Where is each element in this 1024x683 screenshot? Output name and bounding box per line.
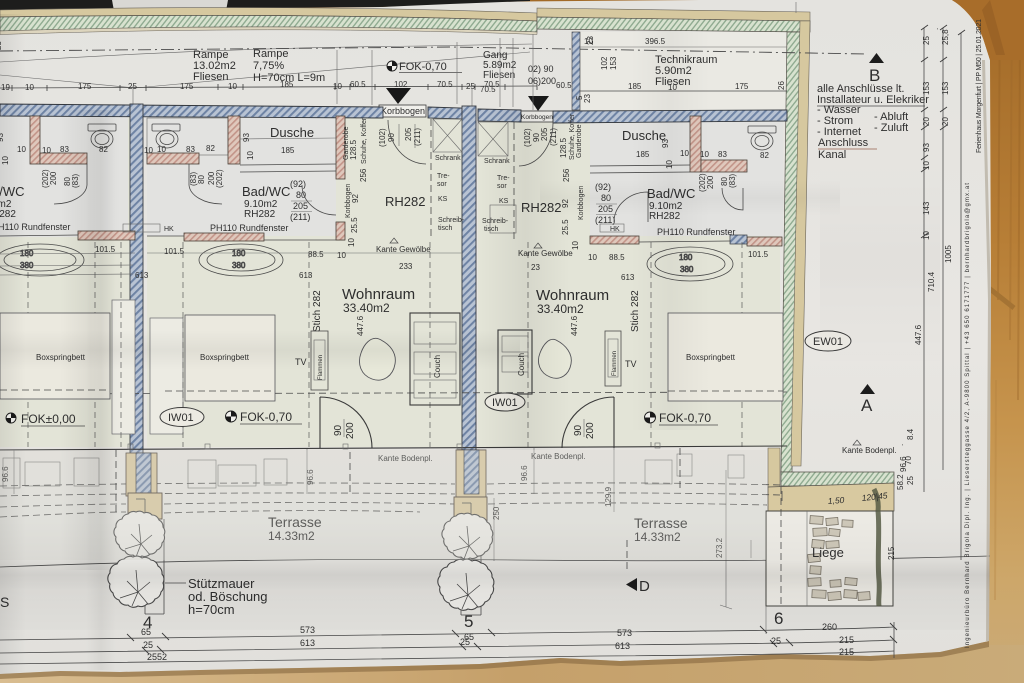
svg-text:20: 20	[941, 117, 950, 126]
svg-text:80: 80	[296, 190, 306, 200]
svg-text:(83): (83)	[728, 173, 737, 188]
svg-text:65: 65	[141, 627, 151, 637]
svg-text:200: 200	[49, 171, 58, 185]
svg-text:80: 80	[197, 175, 206, 184]
svg-text:FOK-0,70: FOK-0,70	[659, 411, 711, 425]
svg-text:10: 10	[17, 145, 26, 154]
svg-text:256: 256	[562, 168, 571, 182]
svg-text:82: 82	[760, 151, 769, 160]
svg-text:23: 23	[583, 94, 592, 103]
svg-text:260: 260	[822, 622, 837, 632]
svg-text:2552: 2552	[147, 652, 167, 662]
svg-text:25.5: 25.5	[350, 217, 359, 233]
svg-text:613: 613	[621, 273, 635, 282]
svg-text:10: 10	[1, 156, 10, 165]
svg-text:205: 205	[404, 127, 413, 141]
svg-text:10: 10	[337, 251, 346, 260]
svg-text:5: 5	[464, 612, 473, 631]
svg-text:Kante Gewölbe: Kante Gewölbe	[376, 245, 431, 254]
svg-text:10: 10	[922, 161, 931, 170]
svg-text:KS: KS	[499, 198, 509, 205]
svg-text:256: 256	[359, 168, 368, 182]
svg-text:20: 20	[922, 117, 931, 126]
svg-text:Schuhe, Koffer: Schuhe, Koffer	[569, 113, 576, 160]
svg-text:1005: 1005	[944, 245, 953, 263]
svg-text:90: 90	[333, 424, 344, 436]
svg-text:200: 200	[585, 422, 596, 439]
svg-text:FOK-0,70: FOK-0,70	[240, 410, 292, 424]
svg-text:H282: H282	[0, 209, 16, 220]
svg-text:82: 82	[99, 145, 108, 154]
svg-text:Fliesen: Fliesen	[193, 71, 228, 83]
svg-text:82: 82	[206, 144, 215, 153]
svg-text:25: 25	[771, 636, 781, 646]
svg-text:Schreib-: Schreib-	[482, 218, 509, 225]
svg-text:Boxspringbett: Boxspringbett	[686, 353, 736, 362]
svg-text:TV: TV	[295, 357, 307, 367]
svg-text:10: 10	[25, 83, 34, 92]
svg-text:(102): (102)	[523, 128, 532, 147]
svg-text:Rampe: Rampe	[253, 48, 288, 60]
svg-text:83: 83	[718, 150, 727, 159]
svg-text:710.4: 710.4	[927, 271, 936, 292]
svg-text:25: 25	[466, 82, 475, 91]
svg-text:Flammen: Flammen	[318, 355, 324, 380]
svg-text:613: 613	[300, 638, 315, 648]
svg-text:613: 613	[615, 641, 630, 651]
svg-text:153: 153	[922, 81, 931, 95]
svg-text:Korbbogen: Korbbogen	[521, 114, 553, 121]
svg-text:10: 10	[228, 82, 237, 91]
svg-text:Schrank: Schrank	[435, 155, 461, 162]
svg-text:180: 180	[679, 253, 693, 262]
svg-text:380: 380	[232, 261, 246, 270]
svg-text:88.5: 88.5	[609, 253, 625, 262]
svg-text:Couch: Couch	[433, 355, 442, 378]
svg-text:A: A	[861, 396, 873, 415]
svg-text:200: 200	[345, 422, 356, 439]
svg-text:S: S	[0, 594, 9, 610]
svg-text:573: 573	[300, 625, 315, 635]
svg-text:83: 83	[186, 145, 195, 154]
svg-text:613: 613	[299, 271, 313, 280]
svg-text:Garderobe: Garderobe	[576, 124, 583, 158]
svg-text:60.5: 60.5	[350, 80, 366, 89]
svg-text:IW01: IW01	[492, 397, 518, 409]
svg-text:613: 613	[135, 271, 149, 280]
svg-text:Flammen: Flammen	[612, 351, 618, 376]
svg-text:Boxspringbett: Boxspringbett	[200, 353, 250, 362]
svg-text:(211): (211)	[595, 215, 615, 225]
svg-text:Stich 282: Stich 282	[630, 290, 641, 332]
svg-text:58.2: 58.2	[896, 474, 905, 490]
svg-text:Boxspringbett: Boxspringbett	[36, 353, 86, 362]
svg-text:10: 10	[665, 160, 674, 169]
svg-text:101.5: 101.5	[164, 247, 185, 256]
svg-text:KS: KS	[438, 196, 448, 203]
svg-text:EW01: EW01	[813, 336, 843, 348]
svg-text:TV: TV	[625, 359, 637, 369]
svg-text:19: 19	[1, 83, 10, 92]
svg-text:10: 10	[246, 151, 255, 160]
svg-text:175: 175	[78, 82, 92, 91]
svg-text:10: 10	[668, 83, 677, 92]
svg-text:93: 93	[242, 133, 251, 142]
svg-text:02) 90: 02) 90	[528, 64, 554, 74]
svg-text:93: 93	[0, 133, 5, 142]
svg-text:8.4: 8.4	[906, 428, 915, 440]
svg-text:(211): (211)	[290, 212, 310, 222]
svg-text:Kante Bodenpl.: Kante Bodenpl.	[842, 446, 897, 455]
svg-text:Tre-: Tre-	[437, 173, 450, 180]
svg-text:10: 10	[42, 146, 51, 155]
svg-text:215: 215	[887, 546, 896, 560]
svg-text:Korbbogen: Korbbogen	[345, 184, 352, 218]
svg-text:83: 83	[60, 145, 69, 154]
svg-text:180: 180	[232, 249, 246, 258]
svg-text:(83): (83)	[71, 173, 80, 188]
svg-text:92: 92	[561, 199, 570, 208]
svg-text:RH282: RH282	[521, 200, 561, 215]
svg-text:128.5: 128.5	[349, 139, 358, 160]
svg-text:215: 215	[839, 647, 854, 657]
svg-text:10: 10	[922, 231, 931, 240]
svg-text:205: 205	[598, 204, 613, 214]
svg-text:175: 175	[735, 82, 749, 91]
svg-text:(92): (92)	[595, 182, 611, 192]
svg-text:153: 153	[609, 56, 618, 70]
svg-text:10: 10	[700, 150, 709, 159]
svg-text:396.5: 396.5	[645, 37, 666, 46]
svg-text:205: 205	[293, 201, 308, 211]
svg-text:101.5: 101.5	[95, 245, 116, 254]
svg-text:h=70cm: h=70cm	[188, 602, 235, 617]
svg-text:153: 153	[941, 81, 950, 95]
svg-text:Schuhe, Koffer: Schuhe, Koffer	[361, 117, 368, 164]
svg-text:200: 200	[706, 175, 715, 189]
svg-text:26: 26	[777, 81, 786, 90]
svg-text:10: 10	[680, 149, 689, 158]
svg-text:Dusche: Dusche	[622, 128, 666, 143]
svg-text:.: .	[931, 28, 940, 30]
svg-text:1,50: 1,50	[827, 495, 844, 506]
svg-text:90: 90	[573, 424, 584, 436]
svg-text:Korbbogen: Korbbogen	[578, 186, 585, 220]
svg-text:92: 92	[351, 194, 360, 203]
svg-text:102: 102	[600, 56, 609, 70]
svg-text:93: 93	[922, 143, 931, 152]
svg-text:88.5: 88.5	[308, 250, 324, 259]
svg-text:(102): (102)	[378, 128, 387, 147]
svg-text:Korbbogen: Korbbogen	[381, 106, 425, 116]
svg-text:- Zuluft: - Zuluft	[874, 122, 908, 134]
svg-text:80: 80	[601, 193, 611, 203]
svg-text:PH110 Rundfenster: PH110 Rundfenster	[657, 227, 735, 237]
svg-text:RH282: RH282	[385, 194, 425, 209]
svg-text:175: 175	[180, 82, 194, 91]
svg-text:Couch: Couch	[517, 353, 526, 376]
svg-text:(211): (211)	[549, 128, 558, 146]
svg-text:Anschluss: Anschluss	[818, 137, 869, 149]
svg-text:143: 143	[922, 201, 931, 215]
svg-text:10: 10	[144, 146, 153, 155]
svg-text:128.5: 128.5	[559, 137, 568, 158]
svg-text:233: 233	[399, 262, 413, 271]
svg-text:25: 25	[0, 41, 3, 50]
svg-text:PH110 Rundfenster: PH110 Rundfenster	[210, 223, 288, 233]
svg-text:25.5: 25.5	[561, 219, 570, 235]
svg-text:H110 Rundfenster: H110 Rundfenster	[0, 222, 70, 232]
svg-text:25: 25	[143, 640, 153, 650]
svg-text:96.6: 96.6	[899, 456, 908, 472]
svg-text:tisch: tisch	[438, 225, 453, 232]
svg-text:Liege: Liege	[812, 545, 844, 560]
svg-text:Bad/WC: Bad/WC	[647, 186, 695, 201]
svg-text:25: 25	[906, 476, 915, 485]
svg-text:185: 185	[628, 82, 642, 91]
svg-text:D: D	[639, 578, 650, 595]
svg-text:215: 215	[839, 635, 854, 645]
svg-text:Bad/WC: Bad/WC	[242, 184, 290, 199]
svg-text:205: 205	[540, 127, 549, 141]
svg-text:Tre-: Tre-	[497, 175, 510, 182]
svg-text:06)200: 06)200	[528, 76, 556, 86]
svg-text:FOK-0,70: FOK-0,70	[399, 61, 447, 73]
svg-text:sor: sor	[437, 181, 447, 188]
svg-text:185: 185	[636, 150, 650, 159]
svg-text:447.6: 447.6	[914, 324, 923, 345]
svg-text:Stich 282: Stich 282	[312, 290, 323, 332]
svg-text:90: 90	[387, 133, 396, 142]
svg-text:70.5: 70.5	[480, 85, 496, 94]
svg-text:101.5: 101.5	[748, 250, 769, 259]
svg-text:sor: sor	[497, 183, 507, 190]
svg-text:23: 23	[586, 36, 595, 45]
svg-text:(92): (92)	[290, 179, 306, 189]
svg-text:447.6: 447.6	[570, 315, 579, 336]
svg-text:185: 185	[280, 80, 294, 89]
svg-text:70.5: 70.5	[437, 80, 453, 89]
svg-text:10: 10	[333, 82, 342, 91]
svg-text:60.5: 60.5	[556, 81, 572, 90]
svg-text:380: 380	[680, 265, 694, 274]
svg-text:447.6: 447.6	[356, 315, 365, 336]
svg-text:33.40m2: 33.40m2	[537, 302, 584, 316]
svg-text:d/WC: d/WC	[0, 184, 25, 199]
svg-text:102: 102	[394, 80, 408, 89]
svg-text:25,8: 25,8	[941, 29, 950, 45]
svg-text:Schreib-: Schreib-	[438, 217, 465, 224]
svg-text:10: 10	[588, 253, 597, 262]
svg-text:185: 185	[281, 146, 295, 155]
svg-text:RH282: RH282	[649, 211, 681, 222]
svg-text:tisch: tisch	[484, 226, 499, 233]
svg-text:33.40m2: 33.40m2	[343, 301, 390, 315]
svg-text:25: 25	[922, 36, 931, 45]
svg-text:Schrank: Schrank	[484, 158, 510, 165]
svg-text:FOK±0,00: FOK±0,00	[21, 412, 76, 426]
svg-text:Kanal: Kanal	[818, 149, 846, 161]
svg-text:Dusche: Dusche	[270, 125, 314, 140]
svg-text:573: 573	[617, 628, 632, 638]
svg-text:(211): (211)	[413, 128, 422, 146]
svg-text:Kante Gewölbe: Kante Gewölbe	[518, 249, 573, 258]
svg-text:7,75%: 7,75%	[253, 60, 284, 72]
svg-text:HK: HK	[164, 226, 174, 233]
svg-text:10: 10	[347, 238, 356, 247]
svg-text:IW01: IW01	[168, 412, 194, 424]
svg-text:10: 10	[157, 145, 166, 154]
svg-text:6: 6	[774, 609, 783, 628]
svg-text:RH282: RH282	[244, 209, 276, 220]
svg-text:HK: HK	[610, 226, 620, 233]
svg-text:(202): (202)	[215, 169, 224, 188]
svg-text:.: .	[896, 444, 905, 446]
svg-text:93: 93	[661, 139, 670, 148]
svg-text:Ferienhaus Morgenfurt | PP M50: Ferienhaus Morgenfurt | PP M50 | 25.01.2…	[976, 19, 983, 153]
svg-text:25: 25	[460, 637, 470, 647]
svg-text:23: 23	[531, 263, 540, 272]
